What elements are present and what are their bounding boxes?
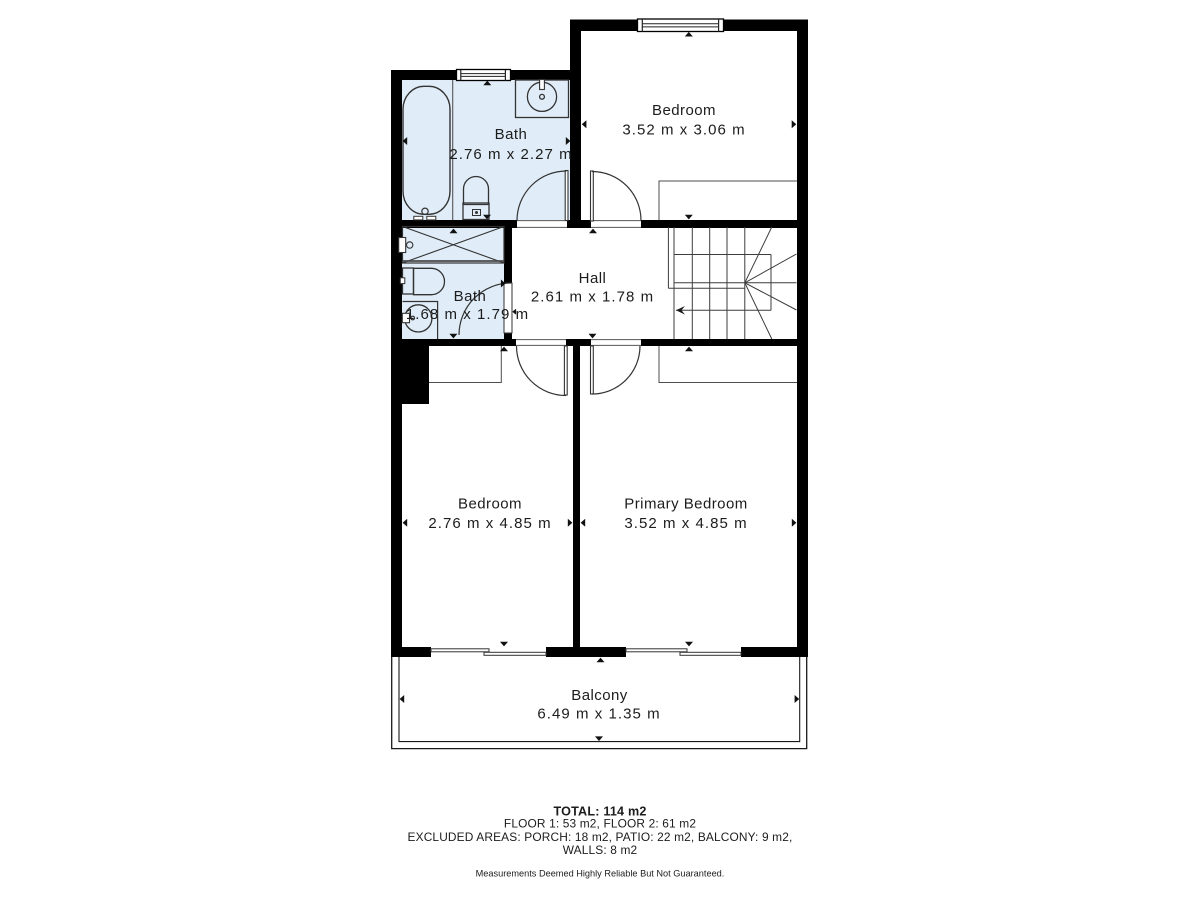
svg-text:Measurements Deemed Highly Rel: Measurements Deemed Highly Reliable But … [476, 869, 725, 879]
svg-text:Primary Bedroom: Primary Bedroom [624, 496, 747, 513]
svg-text:1.68 m x 1.79 m: 1.68 m x 1.79 m [406, 306, 529, 323]
svg-text:3.52 m x 3.06 m: 3.52 m x 3.06 m [622, 122, 745, 139]
svg-text:Bath: Bath [495, 126, 528, 143]
svg-text:6.49 m x 1.35 m: 6.49 m x 1.35 m [537, 706, 660, 723]
svg-text:3.52 m x 4.85 m: 3.52 m x 4.85 m [624, 515, 747, 532]
svg-text:Balcony: Balcony [571, 687, 628, 704]
svg-text:Bedroom: Bedroom [652, 102, 716, 119]
svg-text:Bath: Bath [454, 288, 487, 305]
svg-text:EXCLUDED AREAS: PORCH: 18 m2,: EXCLUDED AREAS: PORCH: 18 m2, PATIO: 22 … [408, 830, 793, 844]
svg-text:2.76 m x 4.85 m: 2.76 m x 4.85 m [428, 515, 551, 532]
svg-text:Hall: Hall [579, 270, 607, 287]
svg-text:Bedroom: Bedroom [458, 496, 522, 513]
svg-text:FLOOR 1: 53 m2, FLOOR 2: 61 m2: FLOOR 1: 53 m2, FLOOR 2: 61 m2 [504, 817, 696, 831]
svg-text:2.61 m x 1.78 m: 2.61 m x 1.78 m [531, 289, 654, 306]
svg-text:WALLS: 8 m2: WALLS: 8 m2 [563, 843, 638, 857]
svg-text:2.76 m x 2.27 m: 2.76 m x 2.27 m [449, 146, 572, 163]
